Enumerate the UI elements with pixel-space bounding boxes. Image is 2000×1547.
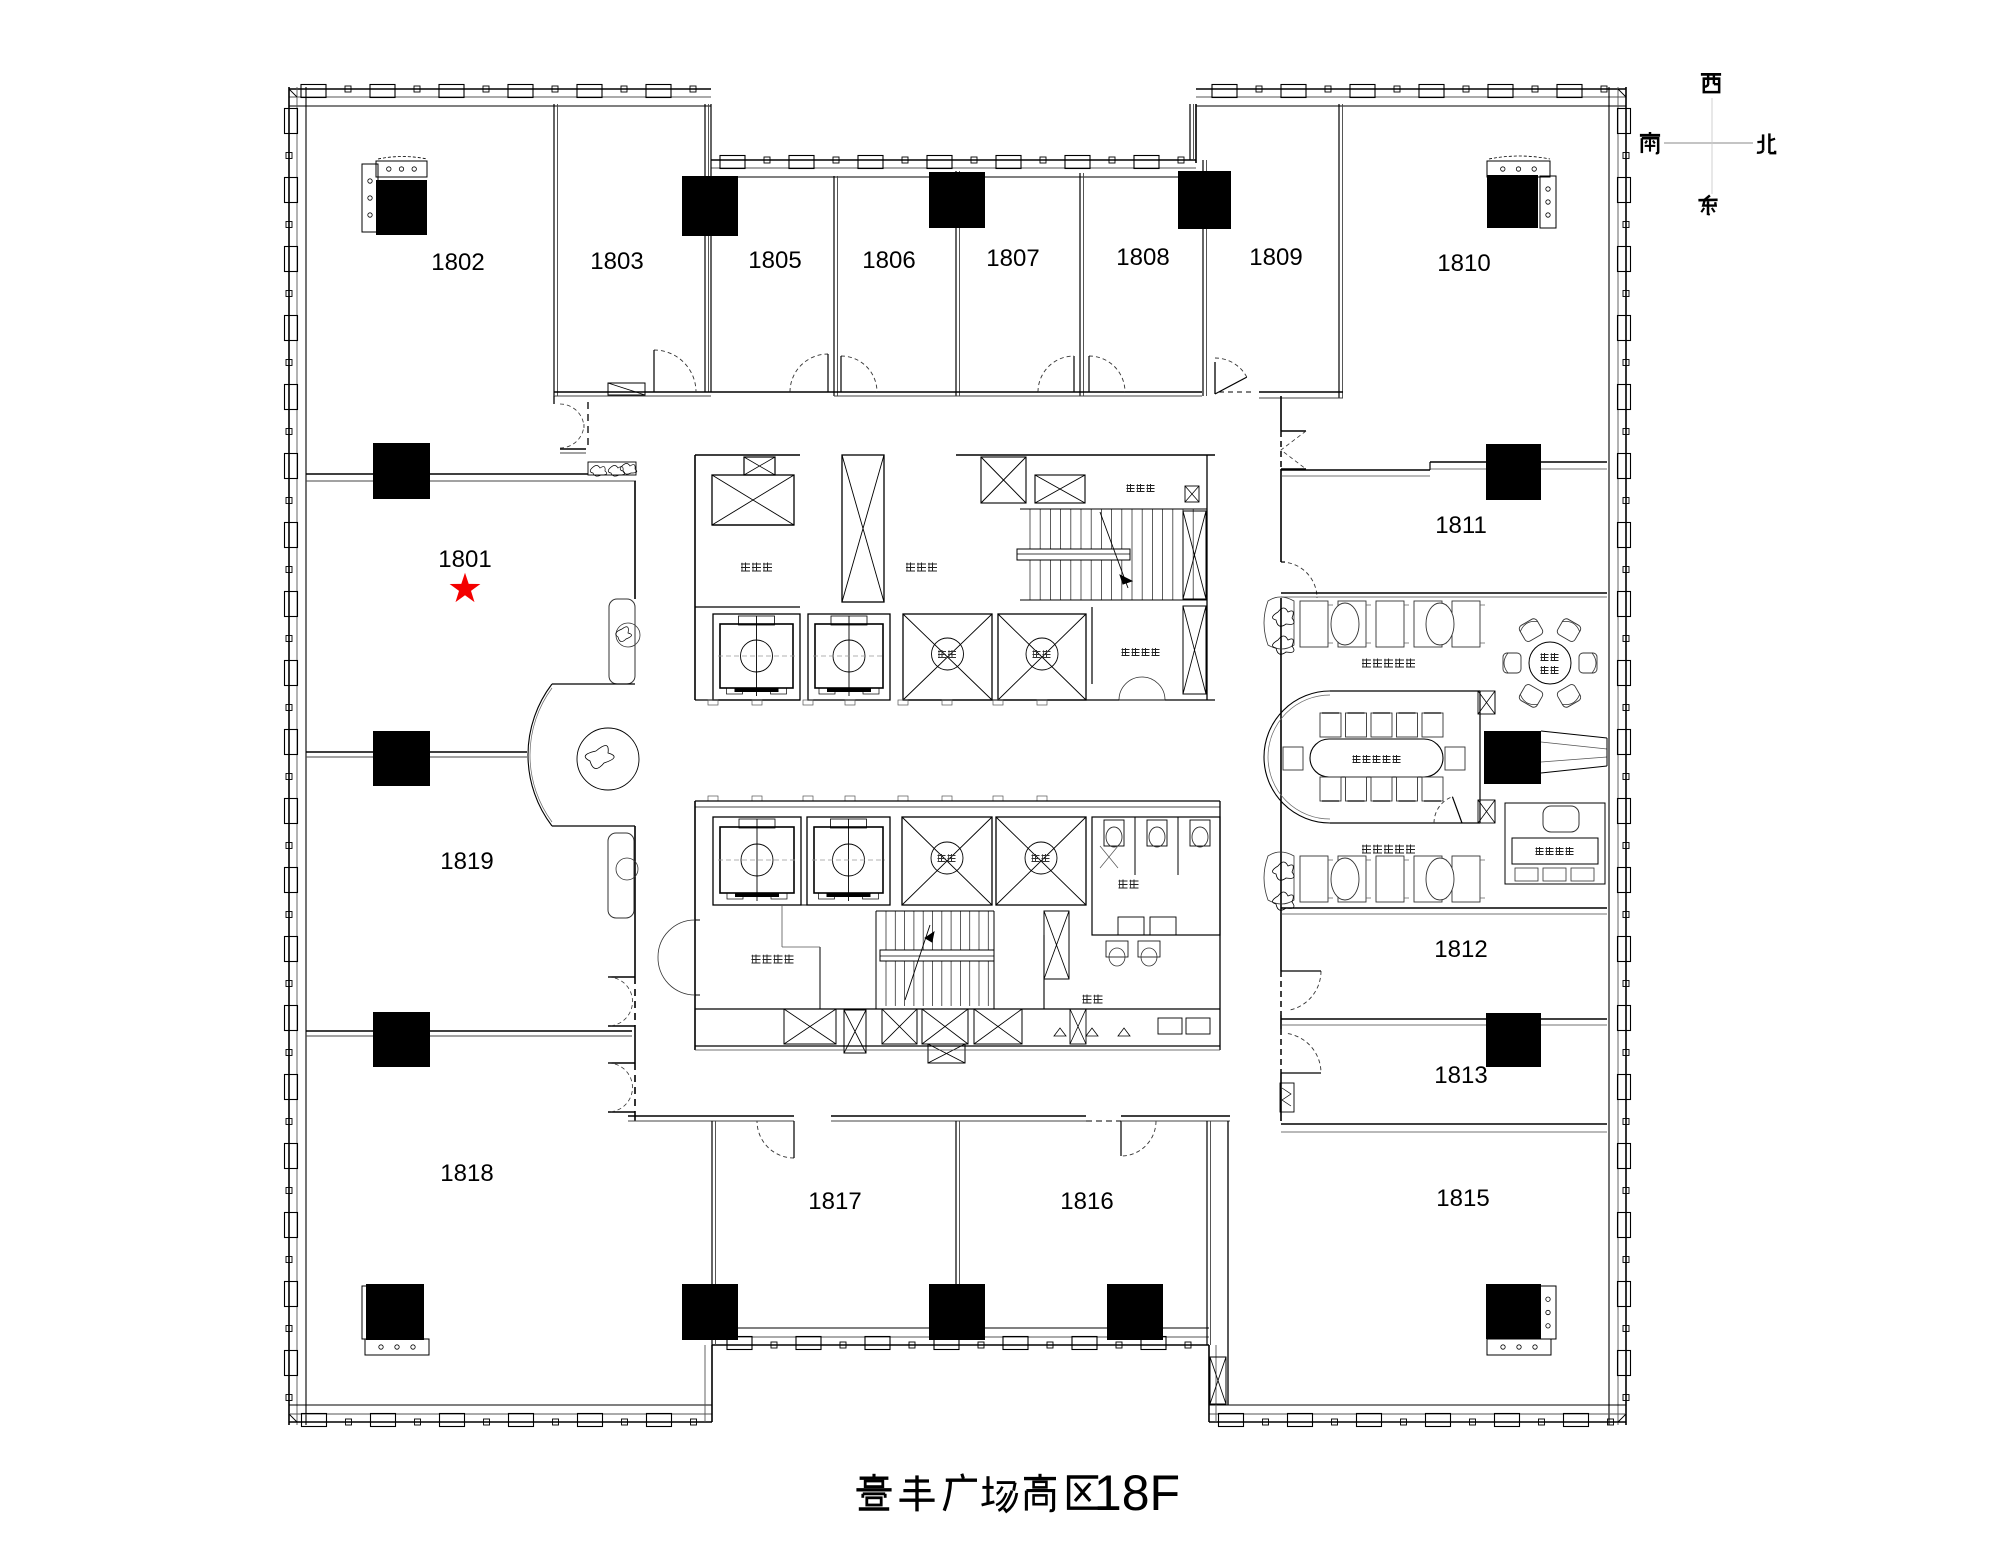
svg-text:1810: 1810 xyxy=(1437,250,1490,277)
svg-text:1809: 1809 xyxy=(1249,244,1302,271)
svg-text:1815: 1815 xyxy=(1436,1185,1489,1212)
svg-text:1819: 1819 xyxy=(440,848,493,875)
svg-text:1813: 1813 xyxy=(1434,1062,1487,1089)
svg-text:1801: 1801 xyxy=(438,546,491,573)
svg-text:1805: 1805 xyxy=(748,247,801,274)
svg-text:1816: 1816 xyxy=(1060,1188,1113,1215)
svg-text:1808: 1808 xyxy=(1116,244,1169,271)
svg-text:1817: 1817 xyxy=(808,1188,861,1215)
svg-text:1802: 1802 xyxy=(431,249,484,276)
svg-text:1812: 1812 xyxy=(1434,936,1487,963)
svg-text:1811: 1811 xyxy=(1435,512,1487,539)
svg-text:1803: 1803 xyxy=(590,248,643,275)
svg-text:1806: 1806 xyxy=(862,247,915,274)
svg-text:1818: 1818 xyxy=(440,1160,493,1187)
svg-text:18F: 18F xyxy=(1094,1465,1180,1521)
svg-text:1807: 1807 xyxy=(986,245,1039,272)
